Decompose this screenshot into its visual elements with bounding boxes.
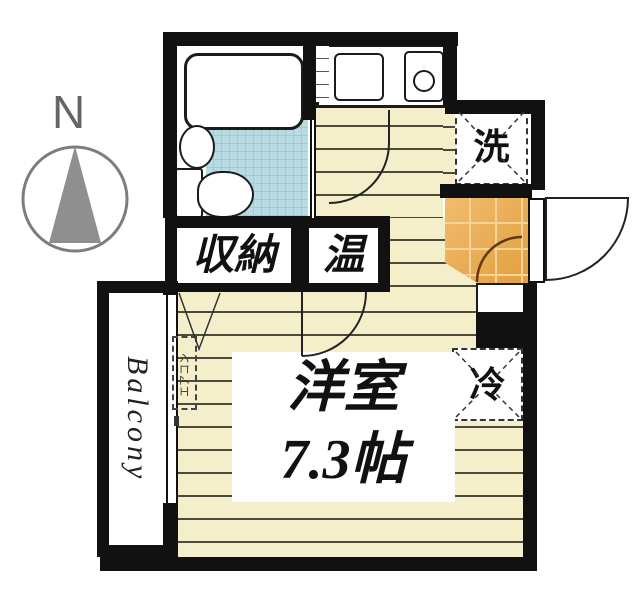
balcony-wall-top xyxy=(97,281,165,293)
stove-burner-icon xyxy=(413,70,435,92)
wall-left-upper xyxy=(163,32,177,218)
window-stub-bottom xyxy=(163,503,178,557)
kitchen-sink xyxy=(334,53,384,101)
window-stub-top xyxy=(163,281,178,295)
wall-bathroom-right xyxy=(303,32,316,120)
wall-washer-right xyxy=(531,108,545,190)
aircon-label: エアコン xyxy=(176,347,192,403)
balcony-wall-bottom xyxy=(97,545,165,557)
entrance-door-swing xyxy=(546,198,628,280)
wall-entrance-top xyxy=(440,184,532,198)
balcony-wall-left xyxy=(97,281,109,557)
compass: N xyxy=(10,85,140,255)
shoe-cabinet xyxy=(476,283,530,315)
fridge-label: 冷 xyxy=(452,348,523,421)
main-room-size: 7.3帖 xyxy=(232,424,455,496)
closet-label: 収納 xyxy=(177,228,291,283)
main-room-name: 洋室 xyxy=(232,352,455,424)
entrance-door-leaf xyxy=(528,198,545,283)
window-lock-icon xyxy=(174,416,179,426)
heater-label: 温 xyxy=(309,228,378,283)
balcony-label: Balcony xyxy=(109,293,165,545)
wall-washer-top xyxy=(445,100,545,114)
wall-kitchen-right xyxy=(443,32,457,105)
wall-bathroom-right-thin xyxy=(310,120,316,218)
compass-north-label: N xyxy=(52,85,85,139)
floor-plan: N 収納 温 洗 冷 xyxy=(0,0,640,601)
washer-label: 洗 xyxy=(455,108,528,185)
kitchen-floor xyxy=(316,104,443,218)
toilet-bowl xyxy=(197,171,254,218)
kitchen-side-cabinet xyxy=(316,46,329,102)
wall-right xyxy=(523,283,537,571)
sink-basin xyxy=(179,125,215,169)
entrance-tile xyxy=(445,198,528,283)
wall-bottom xyxy=(100,557,537,571)
bathtub xyxy=(184,53,304,130)
